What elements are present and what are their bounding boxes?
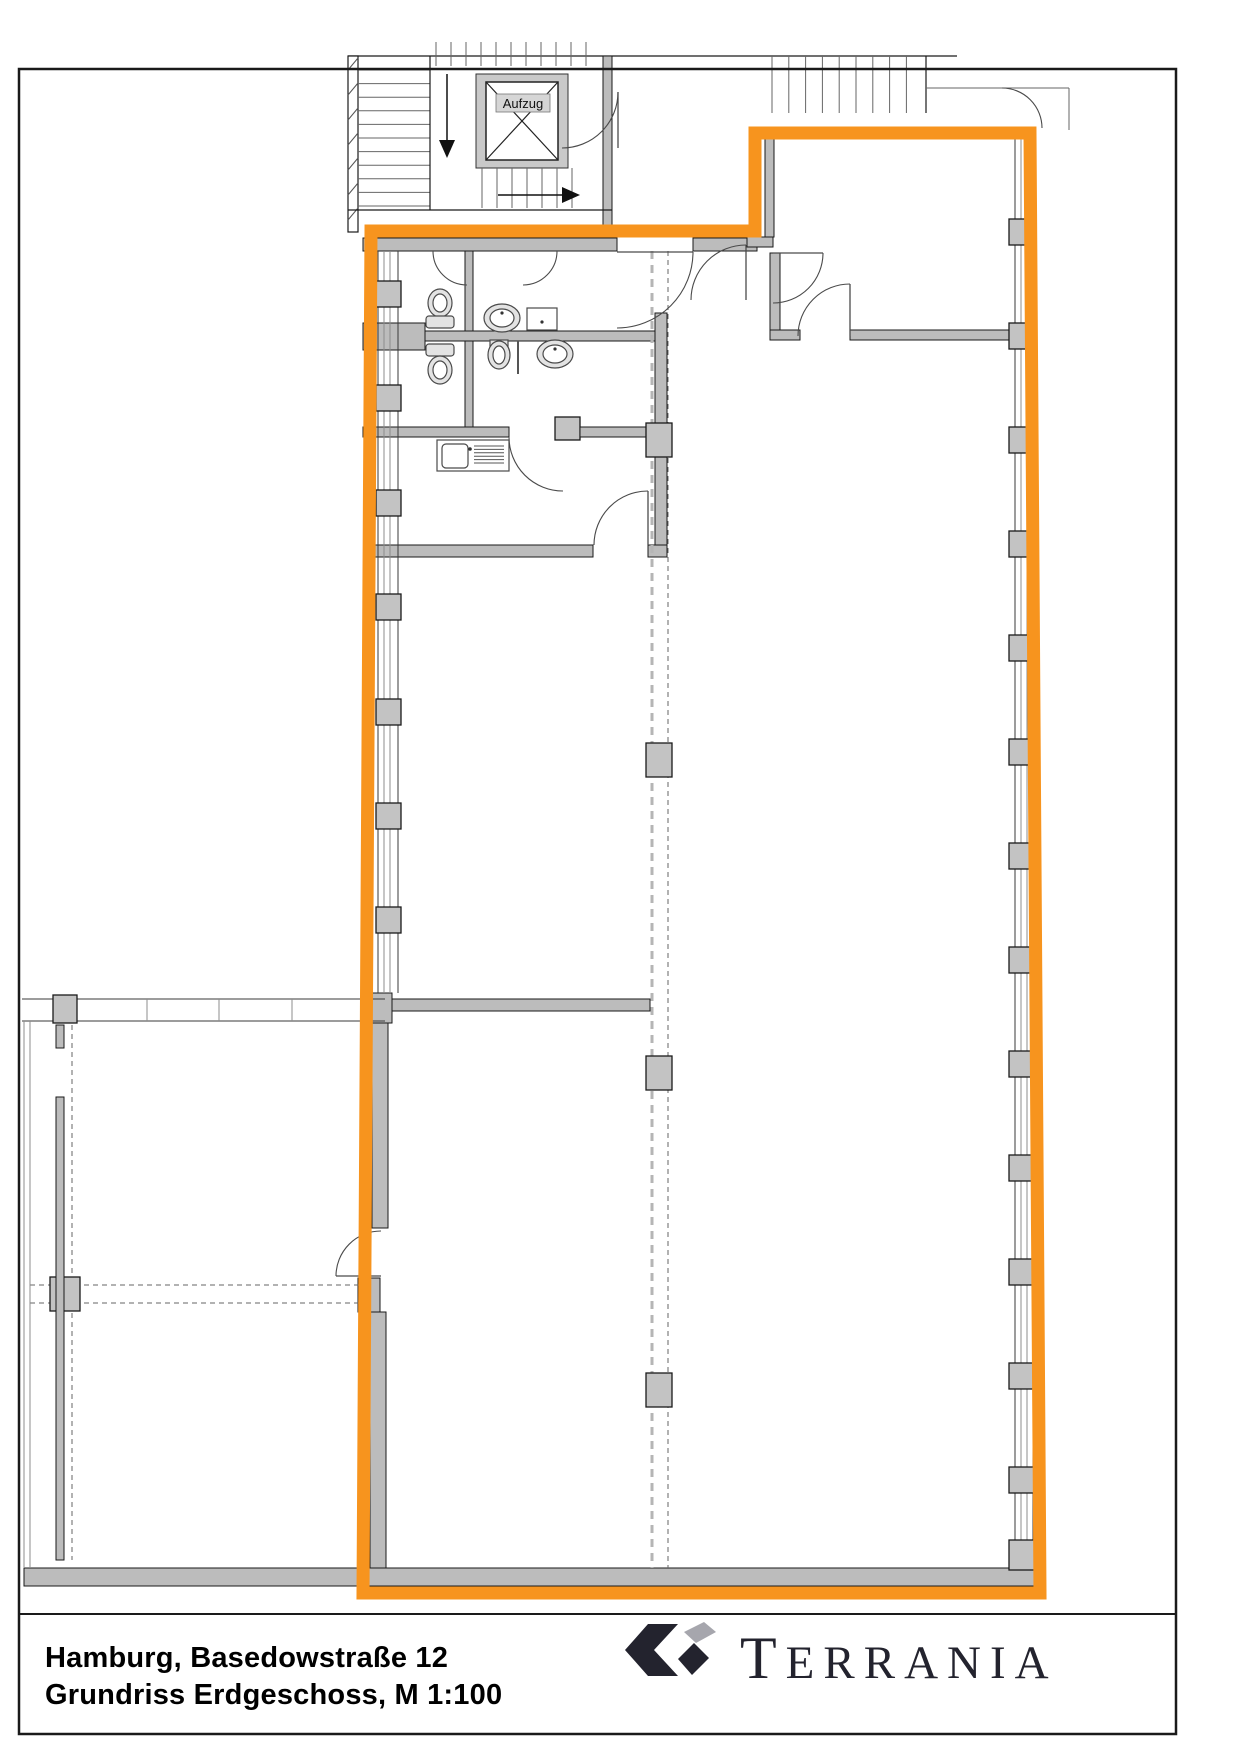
facade-pillar: [376, 803, 401, 829]
facade-pillar: [1009, 1363, 1036, 1389]
urinal-icon: [488, 340, 510, 369]
titleblock: Hamburg, Basedowstraße 12 Grundriss Erdg…: [45, 1640, 502, 1714]
unit-walls: [24, 127, 1035, 1586]
left-facade-windows: [376, 251, 401, 993]
stair-direction-right-arrow: [498, 187, 580, 203]
facade-pillar: [1009, 1467, 1036, 1493]
elevator: Aufzug: [476, 74, 568, 168]
stair-treads-top: [436, 42, 586, 66]
wc-fixtures: [426, 289, 573, 471]
stair-direction-down-arrow: [439, 74, 455, 158]
facade-pillar: [376, 490, 401, 516]
corner-pillar: [1009, 1540, 1036, 1570]
sheet-frame: [19, 69, 1176, 1734]
facade-pillar: [376, 594, 401, 620]
sink-icon: [537, 340, 573, 368]
plan-sheet-page: Aufzug: [0, 0, 1240, 1754]
company-logo: TERRANIA: [620, 1618, 1160, 1708]
mirror-cabinet-icon: [527, 308, 557, 330]
sink-icon: [484, 304, 520, 332]
building-entrance-door-arc: [1002, 88, 1042, 128]
facade-pillar: [376, 907, 401, 933]
sheet-title-floor-scale: Grundriss Erdgeschoss, M 1:100: [45, 1677, 502, 1714]
interior-column: [646, 423, 672, 457]
kitchen-sink-icon: [437, 440, 509, 471]
terrania-logo-text: TERRANIA: [740, 1624, 1058, 1693]
sheet-title-address: Hamburg, Basedowstraße 12: [45, 1640, 502, 1677]
interior-column: [646, 1373, 672, 1407]
stair-treads-lower: [482, 168, 572, 208]
toilet-icon: [426, 344, 454, 384]
terrania-logo-mark: [620, 1618, 740, 1708]
toilet-icon: [426, 289, 454, 328]
facade-pillar: [376, 281, 401, 307]
stair-treads-upper-right: [772, 56, 906, 113]
stair-treads-left: [358, 70, 430, 206]
facade-pillar: [376, 699, 401, 725]
interior-column: [646, 1056, 672, 1090]
elevator-label: Aufzug: [503, 96, 543, 111]
floor-plan-drawing: Aufzug: [0, 0, 1240, 1754]
facade-pillar: [376, 385, 401, 411]
unit-doors: [433, 245, 850, 545]
column-grid: [30, 251, 672, 1568]
interior-column: [646, 743, 672, 777]
neighbor-column: [50, 1277, 80, 1311]
